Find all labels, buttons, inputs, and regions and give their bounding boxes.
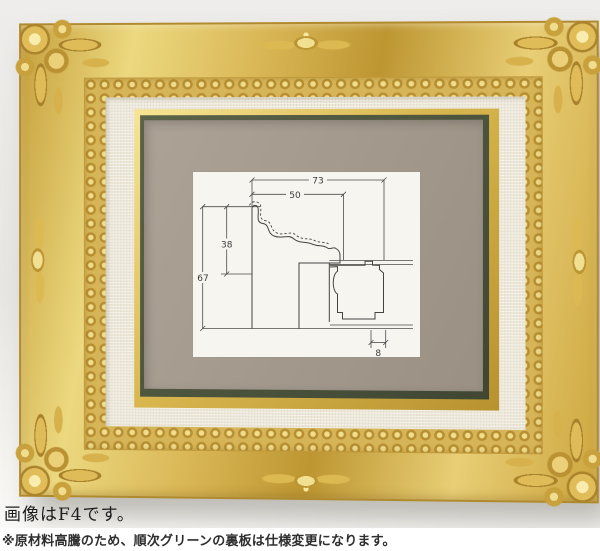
top-center-ornament-icon: [251, 30, 361, 60]
dim-face-width: 50: [289, 191, 301, 201]
frame-photo: 73 50 38 67 8 画像はF4です。: [0, 0, 600, 528]
spec-change-notice: ※原材料高騰のため、順次グリーンの裏板は仕様変更になります。: [0, 530, 396, 549]
image-size-caption: 画像はF4です。: [4, 500, 135, 525]
right-center-ornament-icon: [562, 206, 593, 317]
product-image: 73 50 38 67 8 画像はF4です。 ※原材料高騰のため、順次グリーンの…: [0, 0, 600, 551]
dim-lip-width: 8: [375, 349, 381, 357]
bottom-center-ornament-icon: [251, 463, 361, 494]
dim-total-height: 67: [197, 274, 208, 284]
frame-profile-outline: [250, 202, 384, 329]
dim-front-height: 38: [221, 241, 233, 251]
dimension-labels: 73 50 38 67 8: [195, 175, 381, 357]
left-center-ornament-icon: [25, 206, 54, 315]
notice-bar: ※原材料高騰のため、順次グリーンの裏板は仕様変更になります。: [0, 528, 600, 551]
dim-total-width: 73: [312, 177, 323, 187]
cross-section-diagram: 73 50 38 67 8: [193, 172, 420, 357]
